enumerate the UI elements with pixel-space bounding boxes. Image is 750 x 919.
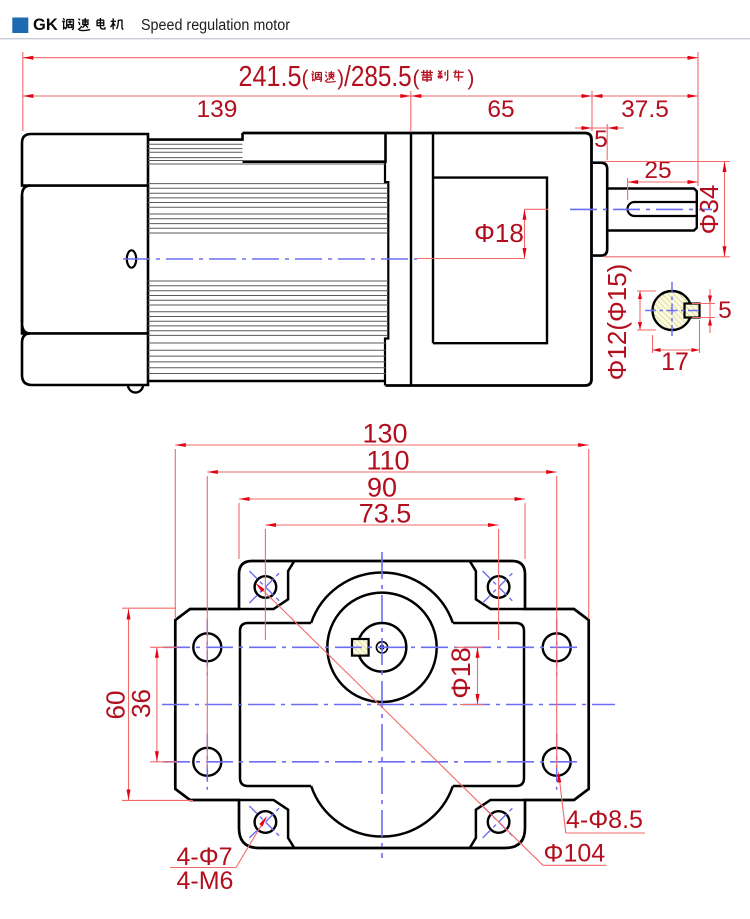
svg-text:65: 65 [487,96,514,123]
svg-text:(: ( [413,67,420,90]
svg-text:36: 36 [126,689,156,718]
svg-text:): ) [337,67,344,90]
svg-text:/285.5: /285.5 [344,61,412,93]
svg-text:110: 110 [366,446,409,476]
svg-text:5: 5 [594,126,608,153]
svg-text:17: 17 [661,348,689,376]
svg-text:Φ12(Φ15): Φ12(Φ15) [602,264,632,381]
svg-text:241.5: 241.5 [239,61,302,93]
svg-text:130: 130 [362,419,407,449]
svg-text:139: 139 [197,96,238,123]
svg-text:4-M6: 4-M6 [177,867,234,895]
svg-text:Φ104: Φ104 [544,840,606,868]
svg-text:4-Φ8.5: 4-Φ8.5 [566,806,643,834]
svg-text:(: ( [302,67,309,90]
svg-text:73.5: 73.5 [359,499,412,529]
svg-text:Φ18: Φ18 [474,218,524,248]
svg-text:5: 5 [718,297,732,324]
svg-text:): ) [467,67,474,90]
svg-text:Speed regulation motor: Speed regulation motor [141,17,290,34]
svg-text:Φ18: Φ18 [446,647,476,699]
svg-text:37.5: 37.5 [621,96,669,123]
svg-text:Φ34: Φ34 [694,185,724,235]
svg-text:GK: GK [33,16,58,34]
